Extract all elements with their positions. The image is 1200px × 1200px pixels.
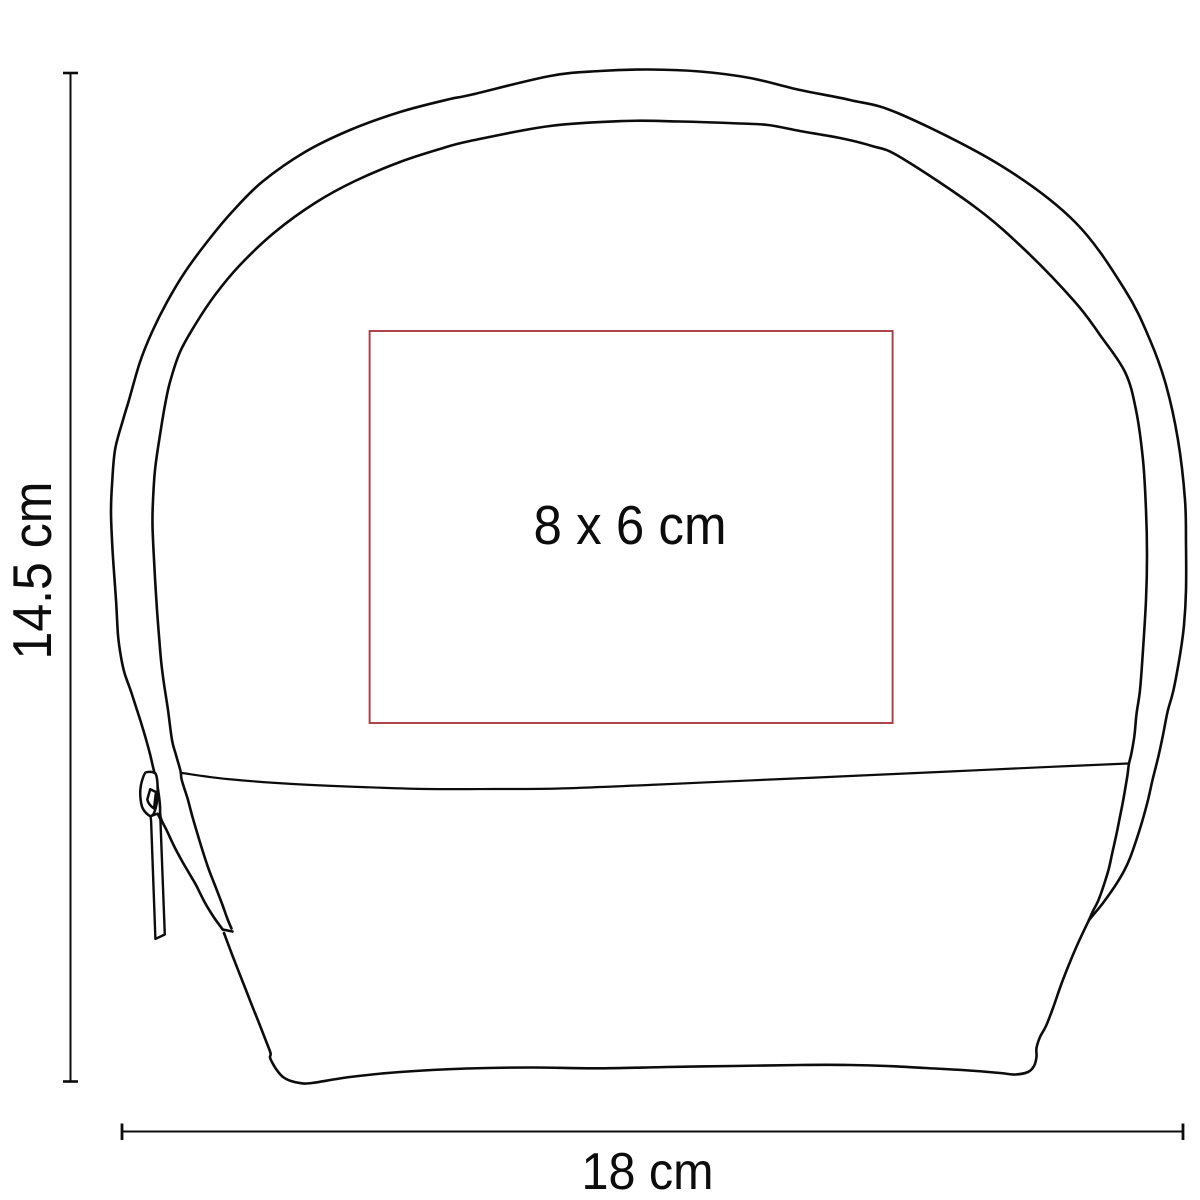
svg-text:8 x 6 cm: 8 x 6 cm (534, 494, 727, 556)
svg-text:18 cm: 18 cm (582, 1143, 714, 1200)
svg-text:14.5 cm: 14.5 cm (1, 482, 63, 660)
